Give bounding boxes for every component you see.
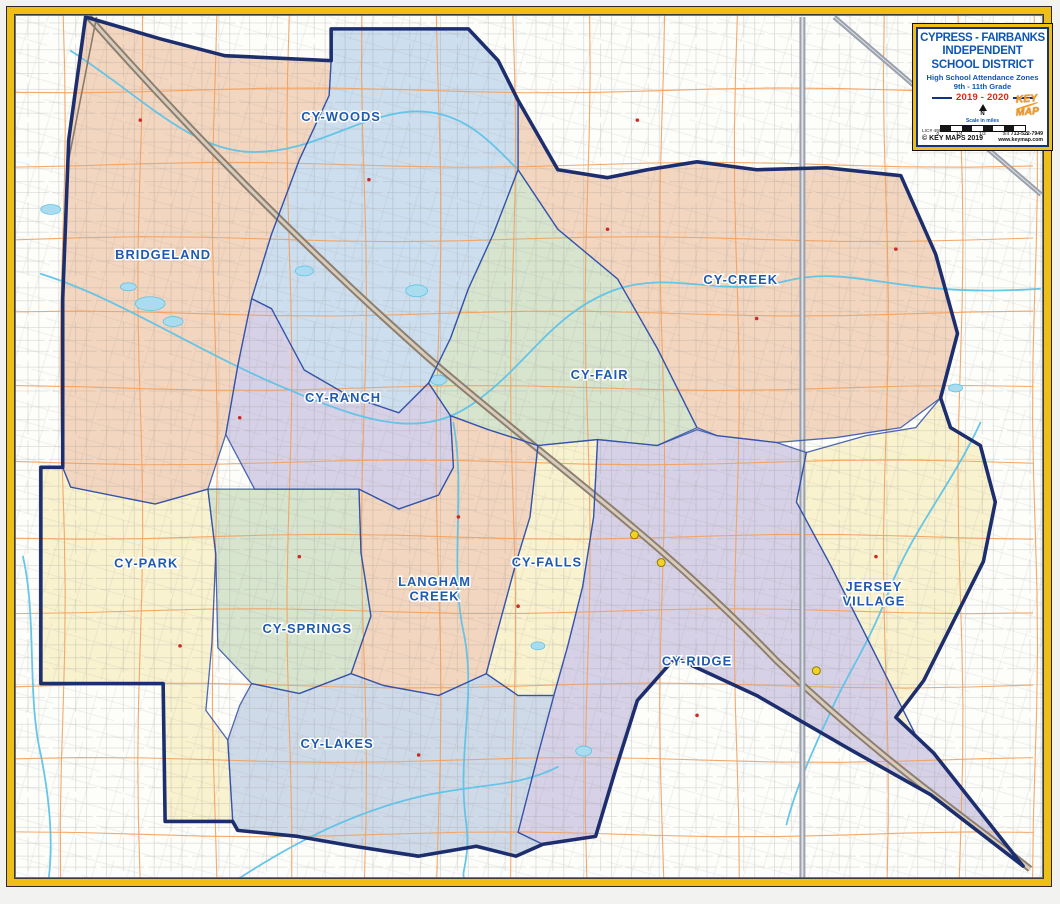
lake — [531, 642, 545, 650]
scale-label: Scale in miles — [918, 118, 1047, 124]
map-frame: BRIDGELANDCY-WOODSCY-CREEKCY-FAIRCY-RANC… — [6, 6, 1052, 887]
district-title-line1: CYPRESS - FAIRBANKS — [918, 32, 1047, 44]
zone-label-cy-ridge: CY-RIDGE — [662, 654, 732, 669]
zone-label-cy-ranch: CY-RANCH — [305, 390, 381, 405]
school-marker — [894, 247, 898, 251]
school-marker — [138, 118, 142, 122]
district-map: BRIDGELANDCY-WOODSCY-CREEKCY-FAIRCY-RANC… — [15, 15, 1043, 878]
school-marker — [298, 555, 302, 559]
lake — [295, 266, 313, 276]
lake — [120, 283, 136, 291]
lake — [431, 375, 447, 385]
publisher-website: www.keymap.com — [998, 137, 1043, 143]
lake — [406, 285, 428, 297]
school-marker — [606, 227, 610, 231]
school-marker — [238, 416, 242, 420]
copyright: © KEY MAPS 2019 — [922, 135, 983, 143]
school-marker — [874, 555, 878, 559]
zone-label-cy-park: CY-PARK — [114, 556, 178, 571]
lake — [41, 204, 61, 214]
title-box: CYPRESS - FAIRBANKS INDEPENDENT SCHOOL D… — [912, 23, 1053, 151]
credits-row: LIC# 490 © KEY MAPS 2019 713-522-7949 ww… — [922, 129, 1043, 143]
school-marker — [755, 317, 759, 321]
zone-label-cy-woods: CY-WOODS — [301, 109, 381, 124]
map-canvas: BRIDGELANDCY-WOODSCY-CREEKCY-FAIRCY-RANC… — [14, 14, 1044, 879]
school-marker — [178, 644, 182, 648]
map-page: BRIDGELANDCY-WOODSCY-CREEKCY-FAIRCY-RANC… — [0, 0, 1060, 904]
lake — [163, 317, 183, 327]
interchange-marker — [630, 531, 638, 539]
zone-label-jersey-village: JERSEYVILLAGE — [843, 579, 906, 609]
school-marker — [457, 515, 461, 519]
subtitle-attendance-zones: High School Attendance Zones — [918, 73, 1047, 82]
lake — [576, 746, 592, 756]
zone-label-bridgeland: BRIDGELAND — [115, 247, 211, 262]
zone-label-cy-falls: CY-FALLS — [512, 555, 582, 570]
school-marker — [417, 753, 421, 757]
street-grid-texture-2 — [15, 15, 1043, 878]
lake — [135, 297, 165, 311]
year-dash-left — [932, 97, 952, 99]
school-marker — [516, 604, 520, 608]
district-title-line2: INDEPENDENT — [918, 46, 1047, 58]
school-marker — [367, 178, 371, 182]
title-box-inner: CYPRESS - FAIRBANKS INDEPENDENT SCHOOL D… — [916, 27, 1049, 147]
subtitle-grades: 9th - 11th Grade — [918, 82, 1047, 91]
school-year: 2019 - 2020 — [956, 92, 1009, 103]
school-marker — [636, 118, 640, 122]
interchange-marker — [812, 667, 820, 675]
zone-label-cy-springs: CY-SPRINGS — [263, 621, 353, 636]
school-marker — [695, 714, 699, 718]
keymap-logo: KEY MAP — [1010, 94, 1043, 118]
lake — [949, 384, 963, 392]
zone-label-cy-fair: CY-FAIR — [571, 367, 629, 382]
zone-label-cy-lakes: CY-LAKES — [301, 736, 374, 751]
interchange-marker — [657, 559, 665, 567]
district-title-line3: SCHOOL DISTRICT — [918, 60, 1047, 72]
zone-label-cy-creek: CY-CREEK — [703, 272, 778, 287]
